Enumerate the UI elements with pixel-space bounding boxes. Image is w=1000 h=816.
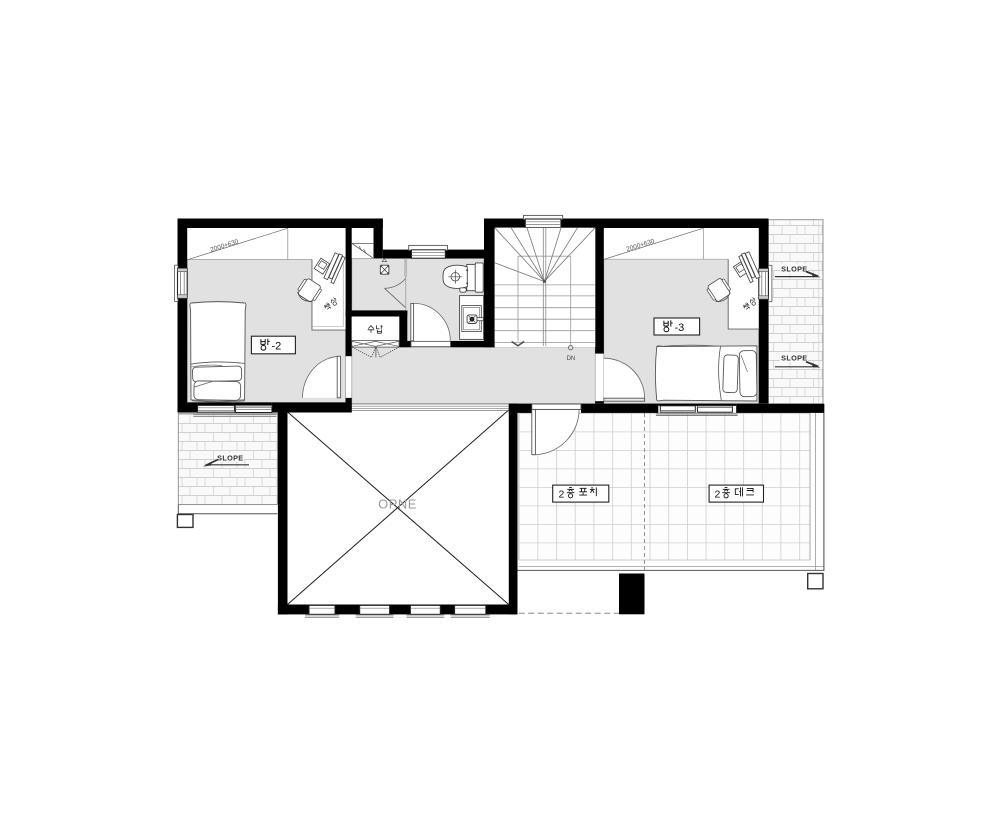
- svg-text:DN: DN: [567, 356, 576, 362]
- svg-text:SLOPE: SLOPE: [781, 265, 807, 274]
- svg-text:-3: -3: [675, 322, 685, 334]
- svg-text:2000+630: 2000+630: [210, 238, 240, 254]
- svg-text:2000+630: 2000+630: [626, 238, 656, 254]
- svg-text:SLOPE: SLOPE: [217, 454, 243, 463]
- svg-text:SLOPE: SLOPE: [781, 354, 807, 363]
- svg-text:2: 2: [559, 489, 565, 501]
- svg-text:-2: -2: [272, 341, 282, 353]
- svg-text:OPNE: OPNE: [378, 497, 417, 512]
- svg-text:2: 2: [715, 489, 721, 501]
